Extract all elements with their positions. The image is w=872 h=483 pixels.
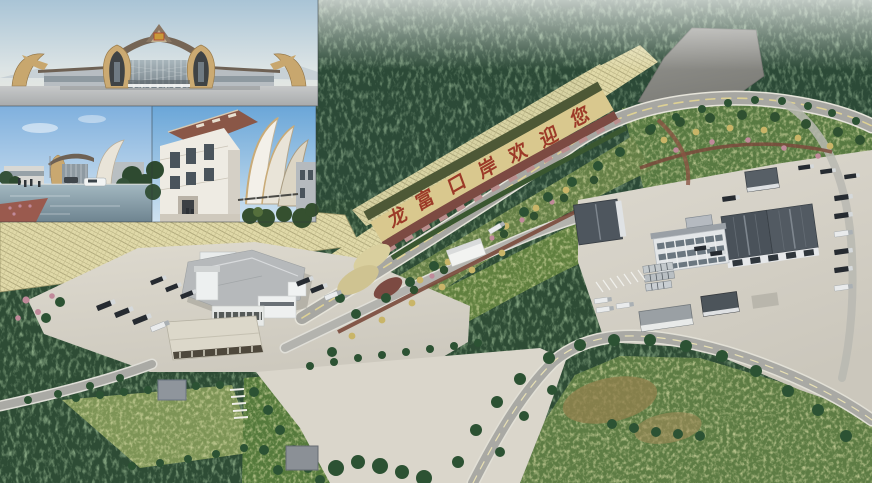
shed (286, 446, 318, 470)
inspection-canopy (166, 316, 263, 360)
inset-street-view (0, 106, 154, 222)
containers (643, 262, 676, 291)
shed (158, 380, 186, 400)
port-aerial-rendering: 龙 富 口 岸 欢 迎 您 (0, 0, 872, 483)
inset-front-elevation (0, 0, 318, 106)
inset-building-closeup (145, 106, 319, 228)
